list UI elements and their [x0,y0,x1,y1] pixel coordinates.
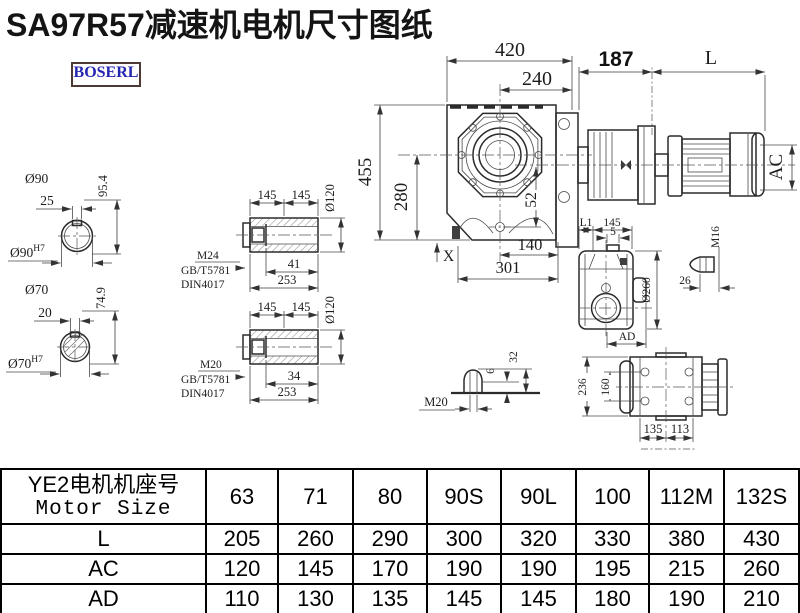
table-cell: 130 [278,584,353,613]
hollow-shaft-2: 145 145 Ø120 34 253 M20 GB/T5781 DIN4017 [181,296,345,404]
dim-L: L [705,47,717,69]
table-cell: 215 [649,554,724,584]
table-cell: 430 [724,524,799,554]
table-cell: 170 [353,554,427,584]
table-cell: 135 [353,584,427,613]
table-cell: 380 [649,524,724,554]
front-l1: L1 [580,217,593,229]
rear-left: 135 [644,422,663,436]
shaft1-height: 95.4 [96,174,110,197]
table-cell: 330 [576,524,649,554]
shaft-section-90: Ø90 25 95.4 Ø90H7 [8,171,121,267]
dim-455: 455 [355,158,376,187]
table-col-header: 132S [724,469,799,524]
shaft1-fit-sup: H7 [33,244,45,254]
drawing-page: 420 240 187 L AC 455 280 52 X 140 301 [0,0,800,613]
table-row-label: L [1,524,206,554]
table-cell: 145 [427,584,501,613]
shaft2-fit-sup: H7 [31,355,43,365]
table-col-header: 100 [576,469,649,524]
front-dia: Ø260 [641,277,653,303]
table-cell: 145 [501,584,576,613]
hollow2-seg1: 145 [258,300,277,314]
table-cell: 195 [576,554,649,584]
dim-240: 240 [522,68,552,90]
dim-420: 420 [495,39,525,61]
table-cell: 260 [278,524,353,554]
table-col-header: 80 [353,469,427,524]
rear-mount-view: 236 160 135 113 [577,347,734,449]
table-cell: 190 [427,554,501,584]
dim-301: 301 [496,258,521,277]
rear-right: 113 [671,422,689,436]
vent-thread: M20 [424,395,448,409]
plug-thread: M16 [710,226,722,248]
table-cell: 190 [649,584,724,613]
dim-140: 140 [518,235,543,254]
hollow1-bolt: M24 [197,250,219,262]
front-key: 5 [610,226,616,238]
shaft1-fit-base: Ø90 [10,245,33,260]
hollow2-seg2: 145 [292,300,311,314]
rear-span: 160 [600,378,612,396]
shaft2-height: 74.9 [94,287,108,309]
hollow-shaft-1: 145 145 Ø120 41 253 M24 GB/T5781 DIN4017 [181,184,345,292]
dim-X: X [443,248,454,265]
gearbox-front-view: L1 145 5 Ø260 AD [578,217,662,348]
gearbox-side-view [398,84,592,262]
table-cell: 180 [576,584,649,613]
hollow1-seg2: 145 [292,188,311,202]
hollow2-std1: GB/T5781 [181,374,230,386]
hollow1-std1: GB/T5781 [181,265,230,277]
table-cell: 190 [501,554,576,584]
table-cell: 145 [278,554,353,584]
table-cell: 290 [353,524,427,554]
shaft2-fit-base: Ø70 [8,356,31,371]
motor-size-table: YE2电机机座号 Motor Size 63 71 80 90S 90L 100… [0,468,800,613]
dim-187: 187 [598,48,633,71]
header-cn: YE2电机机座号 [2,472,205,498]
shaft2-dia: Ø70 [25,282,48,297]
header-en: Motor Size [2,498,205,522]
motor-side-view [515,126,795,204]
table-header-motor-size: YE2电机机座号 Motor Size [1,469,206,524]
hollow1-dia: Ø120 [323,184,337,212]
dim-AC: AC [766,154,787,180]
dim-52: 52 [523,192,540,208]
table-col-header: 112M [649,469,724,524]
boserl-logo-text: BOSERL [74,64,139,81]
table-cell: 320 [501,524,576,554]
plug-bolt-m16: M16 26 [679,226,735,292]
vent-bolt-m20: M20 6 32 [419,351,540,412]
hollow1-std2: DIN4017 [181,279,225,291]
shaft2-key: 20 [38,305,52,320]
table-cell: 110 [206,584,278,613]
table-cell: 120 [206,554,278,584]
hollow1-depth: 41 [288,257,301,271]
table-col-header: 90L [501,469,576,524]
front-ad: AD [619,331,636,343]
rear-height: 236 [577,378,589,396]
table-row-label: AD [1,584,206,613]
table-cell: 205 [206,524,278,554]
shaft1-key: 25 [40,193,54,208]
table-col-header: 63 [206,469,278,524]
table-cell: 300 [427,524,501,554]
hollow2-bolt: M20 [200,359,222,371]
page-title: SA97R57减速机电机尺寸图纸 [6,0,433,46]
table-col-header: 71 [278,469,353,524]
hollow1-total: 253 [278,273,297,287]
shaft1-dia: Ø90 [25,171,48,186]
hollow2-total: 253 [278,385,297,399]
table-cell: 260 [724,554,799,584]
shaft1-fit: Ø90H7 [10,244,45,260]
shaft-section-70: Ø70 20 74.9 Ø70H7 [6,282,119,377]
dim-280: 280 [391,183,412,212]
table-cell: 210 [724,584,799,613]
hollow2-dia: Ø120 [323,296,337,324]
hollow2-std2: DIN4017 [181,388,225,400]
vent-h-big: 32 [508,351,520,363]
hollow1-seg1: 145 [258,188,277,202]
shaft2-fit: Ø70H7 [8,355,43,371]
boserl-logo: BOSERL [71,62,141,87]
table-row-label: AC [1,554,206,584]
plug-len: 26 [679,275,691,287]
hollow2-depth: 34 [288,369,301,383]
table-col-header: 90S [427,469,501,524]
